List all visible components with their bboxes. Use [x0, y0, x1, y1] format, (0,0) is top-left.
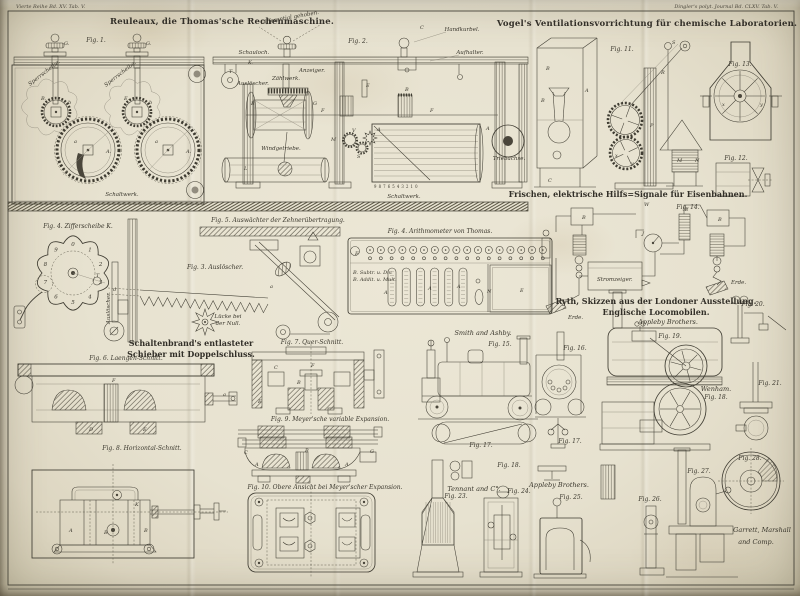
- part-letter: E: [365, 83, 370, 89]
- part-letter: F: [354, 251, 359, 257]
- part-letter: A: [376, 127, 381, 133]
- part-letter: C: [244, 450, 248, 456]
- label-fig-16: Fig. 16.: [562, 345, 586, 352]
- part-letter: B.: [40, 96, 47, 102]
- part-letter: B: [545, 66, 550, 72]
- label-fig-9: Fig. 9. Meyer'sche variable Expansion.: [270, 416, 389, 423]
- figure-zifferscheibe: 1234567890: [14, 219, 137, 342]
- part-letter: A: [344, 462, 349, 468]
- figure-schieber-horizontalschnitt: [32, 464, 228, 564]
- part-letter: A: [254, 462, 259, 468]
- maker-tennant: Tennant and C°.: [447, 485, 500, 493]
- title-ventilation: Vogel's Ventilationsvorrichtung für chem…: [496, 18, 797, 29]
- figure-ventilation: [534, 38, 703, 189]
- label-erde-1: Erde.: [567, 315, 583, 321]
- zifferscheibe-digit: 1: [88, 248, 92, 254]
- label-fig-12: Fig. 12.: [723, 155, 747, 162]
- part-letter: a: [270, 284, 273, 290]
- label-fig-8: Fig. 8. Horizontal-Schnitt.: [101, 445, 182, 452]
- label-fig-24: Fig. 24.: [506, 488, 530, 495]
- part-letter: y: [630, 161, 634, 167]
- label-aufhalter: Aufhalter.: [455, 50, 484, 56]
- part-letter: A.: [105, 149, 112, 155]
- part-letter: d: [113, 287, 116, 293]
- part-letter: A: [584, 88, 589, 94]
- part-letter: B: [143, 528, 148, 534]
- label-fig-26: Fig. 26.: [637, 496, 661, 503]
- zifferscheibe-digit: 7: [44, 280, 48, 286]
- label-triebachse: Triebachse.: [493, 156, 526, 162]
- part-letter: D: [88, 427, 93, 433]
- title-signale: Frischen, elektrische Hilfs=Signale für …: [509, 189, 748, 199]
- label-fig-17a: Fig. 17.: [468, 442, 492, 449]
- part-letter: N: [694, 158, 700, 164]
- label-fig-18a: Fig. 18.: [496, 462, 520, 469]
- part-letter: b: [68, 100, 71, 106]
- maker-garrett-2: and Comp.: [738, 538, 774, 546]
- zifferscheibe-digit: 4: [87, 294, 92, 300]
- part-letter: a: [74, 139, 77, 145]
- zifferscheibe-digit: 9: [54, 248, 58, 254]
- part-letter: C: [420, 25, 424, 31]
- label-fig-15: Fig. 15.: [487, 341, 511, 348]
- figure-schieber-querschnitt: [252, 344, 384, 414]
- part-letter: a: [155, 139, 158, 145]
- zifferscheibe-digit: 8: [44, 262, 48, 268]
- engraving-plate-page: 1234567890: [0, 0, 800, 596]
- part-letter: F: [111, 378, 116, 384]
- part-letter: B: [304, 448, 309, 454]
- figure-bottom-locomobiles: [413, 448, 784, 578]
- label-fig-17b: Fig. 17.: [557, 438, 581, 445]
- figure-smith-ashby: [418, 332, 615, 499]
- part-letter: B: [296, 380, 301, 386]
- label-fig-7: Fig. 7. Quer-Schnitt.: [280, 339, 344, 346]
- part-letter: A: [456, 284, 461, 290]
- maker-garrett-1: Garrett, Marshall: [733, 526, 791, 534]
- part-letter: L: [243, 166, 248, 172]
- part-letter: B: [540, 98, 545, 104]
- part-letter: E.: [123, 96, 130, 102]
- zifferscheibe-digit: 5: [71, 300, 75, 306]
- maker-appleby-2: Appleby Brothers.: [528, 481, 589, 489]
- margin-series: Vierte Reihe Bd. XV. Tab. V.: [16, 4, 86, 10]
- figure-meyer-expansion: [238, 426, 382, 483]
- part-letter: y: [759, 102, 763, 108]
- figure-rechenmaschine-front: [12, 34, 206, 204]
- label-stromzeiger: Stromzeiger.: [597, 277, 633, 283]
- part-letter: A: [485, 126, 490, 132]
- title-locomobilen-1: Ryth, Skizzen aus der Londoner Ausstellu…: [556, 296, 757, 306]
- figure-arithmometer-plan: [348, 238, 552, 314]
- part-letter: B: [717, 217, 722, 223]
- label-fig-6: Fig. 6. Laengen-Schnitt.: [88, 355, 163, 362]
- part-letter: C: [274, 365, 278, 371]
- label-fig-mid: Fig. 2.: [347, 38, 368, 45]
- label-subtr: B. Subtr. u. Div.: [352, 270, 393, 276]
- part-letter: F: [429, 108, 434, 114]
- part-letter: B: [250, 101, 255, 107]
- label-fig-ziffer: Fig. 4. Zifferscheibe K.: [42, 223, 113, 230]
- title-schieber-1: Schaltenbrand's entlasteter: [129, 338, 254, 348]
- label-windgetriebe: Windgetriebe.: [261, 146, 301, 152]
- label-fig-19: Fig. 19.: [657, 333, 681, 340]
- label-fig-11: Fig. 11.: [609, 46, 633, 53]
- part-letter: A: [68, 528, 73, 534]
- part-letter: E: [142, 427, 147, 433]
- engraving-plate: 1234567890: [0, 0, 800, 596]
- label-fig-plan: Fig. 4. Arithmometer von Thomas.: [387, 228, 493, 235]
- figure-schieber-laengsschnitt: [15, 364, 237, 434]
- label-zaehlwerk: Zählwerk.: [271, 76, 300, 82]
- label-fig-28: Fig. 28.: [737, 455, 761, 462]
- part-letter: F: [320, 108, 325, 114]
- label-drum-digits: 9 8 7 6 5 4 3 2 1 0: [374, 184, 418, 189]
- title-locomobilen-2: Englische Locomobilen.: [603, 307, 710, 317]
- zifferscheibe-digit: 2: [98, 262, 103, 268]
- part-letter: A.: [185, 149, 192, 155]
- part-letter: G.: [146, 41, 152, 47]
- label-schaltwerk-left: Schaltwerk.: [105, 192, 139, 198]
- part-letter: A: [383, 290, 388, 296]
- label-erde-2: Erde.: [730, 280, 746, 286]
- zifferscheibe-digit: 6: [54, 294, 58, 300]
- maker-wenham: Wenham.: [701, 385, 731, 393]
- part-letter: S: [357, 154, 361, 160]
- label-fig-25: Fig. 25.: [558, 494, 582, 501]
- part-letter: P: [649, 123, 654, 129]
- label-fig-21: Fig. 21.: [757, 380, 781, 387]
- part-letter: K.: [247, 60, 254, 66]
- label-fig-14: Fig. 14.: [675, 204, 699, 211]
- label-fig-10: Fig. 10. Obere Ansicht bei Meyer'scher E…: [247, 484, 403, 491]
- label-fig-3: Fig. 3. Auslöscher.: [186, 264, 243, 271]
- part-letter: C: [548, 178, 552, 184]
- label-fig-13: Fig. 13.: [727, 61, 751, 68]
- figure-meyer-topview: [248, 488, 375, 578]
- ground-hatch-band: [8, 202, 528, 211]
- label-handkurbel: Handkurbel.: [444, 27, 480, 33]
- label-luecke-1: Lücke bei: [213, 314, 241, 320]
- part-letter: x: [615, 153, 618, 159]
- label-fig-20: Fig. 20.: [740, 301, 764, 308]
- part-letter: A: [427, 286, 432, 292]
- label-fig-18b: Fig. 18.: [703, 394, 727, 401]
- label-addit: B. Addit. u. Mult.: [352, 277, 397, 283]
- part-letter: W: [644, 202, 650, 208]
- part-letter: x: [722, 102, 725, 108]
- figure-fan-flue: [700, 42, 782, 140]
- part-letter: M: [330, 137, 337, 143]
- part-letter: S: [672, 40, 676, 46]
- label-anzeiger: Anzeiger.: [298, 68, 325, 74]
- part-letter: E: [257, 399, 262, 405]
- label-schaltwerk-mid: Schaltwerk.: [387, 194, 421, 200]
- part-letter: B: [103, 530, 108, 536]
- label-fig-left: Fig. 1.: [85, 37, 106, 44]
- part-letter: B: [581, 215, 586, 221]
- maker-appleby-1: Appleby Brothers.: [637, 318, 698, 326]
- part-letter: G: [313, 101, 317, 107]
- part-letter: J: [641, 231, 645, 237]
- label-schauloch: Schauloch.: [239, 50, 270, 56]
- part-letter: a: [223, 392, 226, 398]
- label-fig-5: Fig. 5. Auswächter der Zehnerübertragung…: [210, 217, 345, 224]
- part-letter: R: [660, 70, 665, 76]
- label-ausloescher-mid: Auslöscher.: [236, 81, 269, 87]
- part-letter: M: [676, 158, 683, 164]
- part-letter: G: [370, 449, 374, 455]
- part-letter: G.: [64, 41, 70, 47]
- label-fig-23: Fig. 23.: [443, 493, 467, 500]
- part-letter: E: [519, 288, 524, 294]
- part-letter: F: [310, 363, 315, 369]
- part-letter: b: [149, 100, 152, 106]
- label-luecke-2: der Null.: [216, 321, 241, 327]
- zifferscheibe-digit: 0: [71, 242, 75, 248]
- label-fig-27: Fig. 27.: [686, 468, 710, 475]
- part-letter: N: [486, 289, 492, 295]
- margin-journal: Dingler's polyt. Journal Bd. CLXV. Tab. …: [673, 4, 778, 10]
- part-letter: K: [134, 502, 139, 508]
- part-letter: V: [352, 128, 357, 134]
- part-letter: B: [404, 87, 409, 93]
- maker-smith-ashby: Smith and Ashby.: [454, 329, 511, 337]
- label-ausloescher-vert: Auslöscher.: [106, 292, 112, 325]
